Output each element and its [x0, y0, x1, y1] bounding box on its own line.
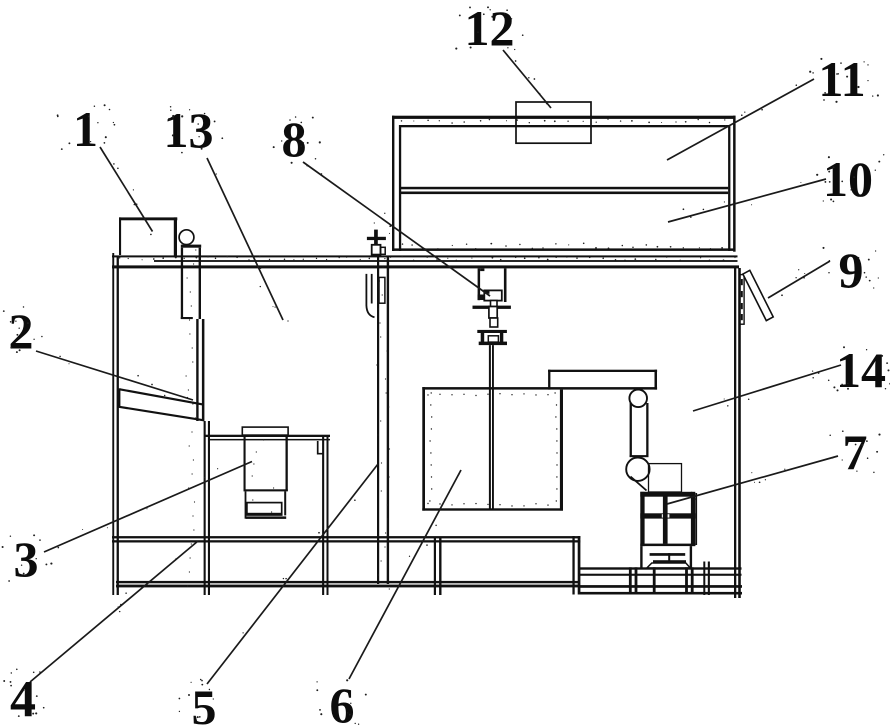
- svg-text:10: 10: [823, 151, 873, 207]
- svg-text:7: 7: [843, 424, 868, 480]
- svg-text:12: 12: [465, 0, 515, 56]
- svg-text:2: 2: [9, 303, 34, 359]
- svg-text:3: 3: [14, 531, 39, 587]
- svg-text:6: 6: [330, 677, 355, 727]
- svg-text:14: 14: [836, 342, 886, 398]
- svg-text:11: 11: [818, 51, 865, 107]
- svg-text:4: 4: [10, 671, 36, 727]
- svg-text:5: 5: [192, 679, 217, 727]
- svg-text:9: 9: [839, 242, 864, 298]
- svg-text:1: 1: [73, 101, 98, 157]
- svg-text:8: 8: [282, 111, 307, 167]
